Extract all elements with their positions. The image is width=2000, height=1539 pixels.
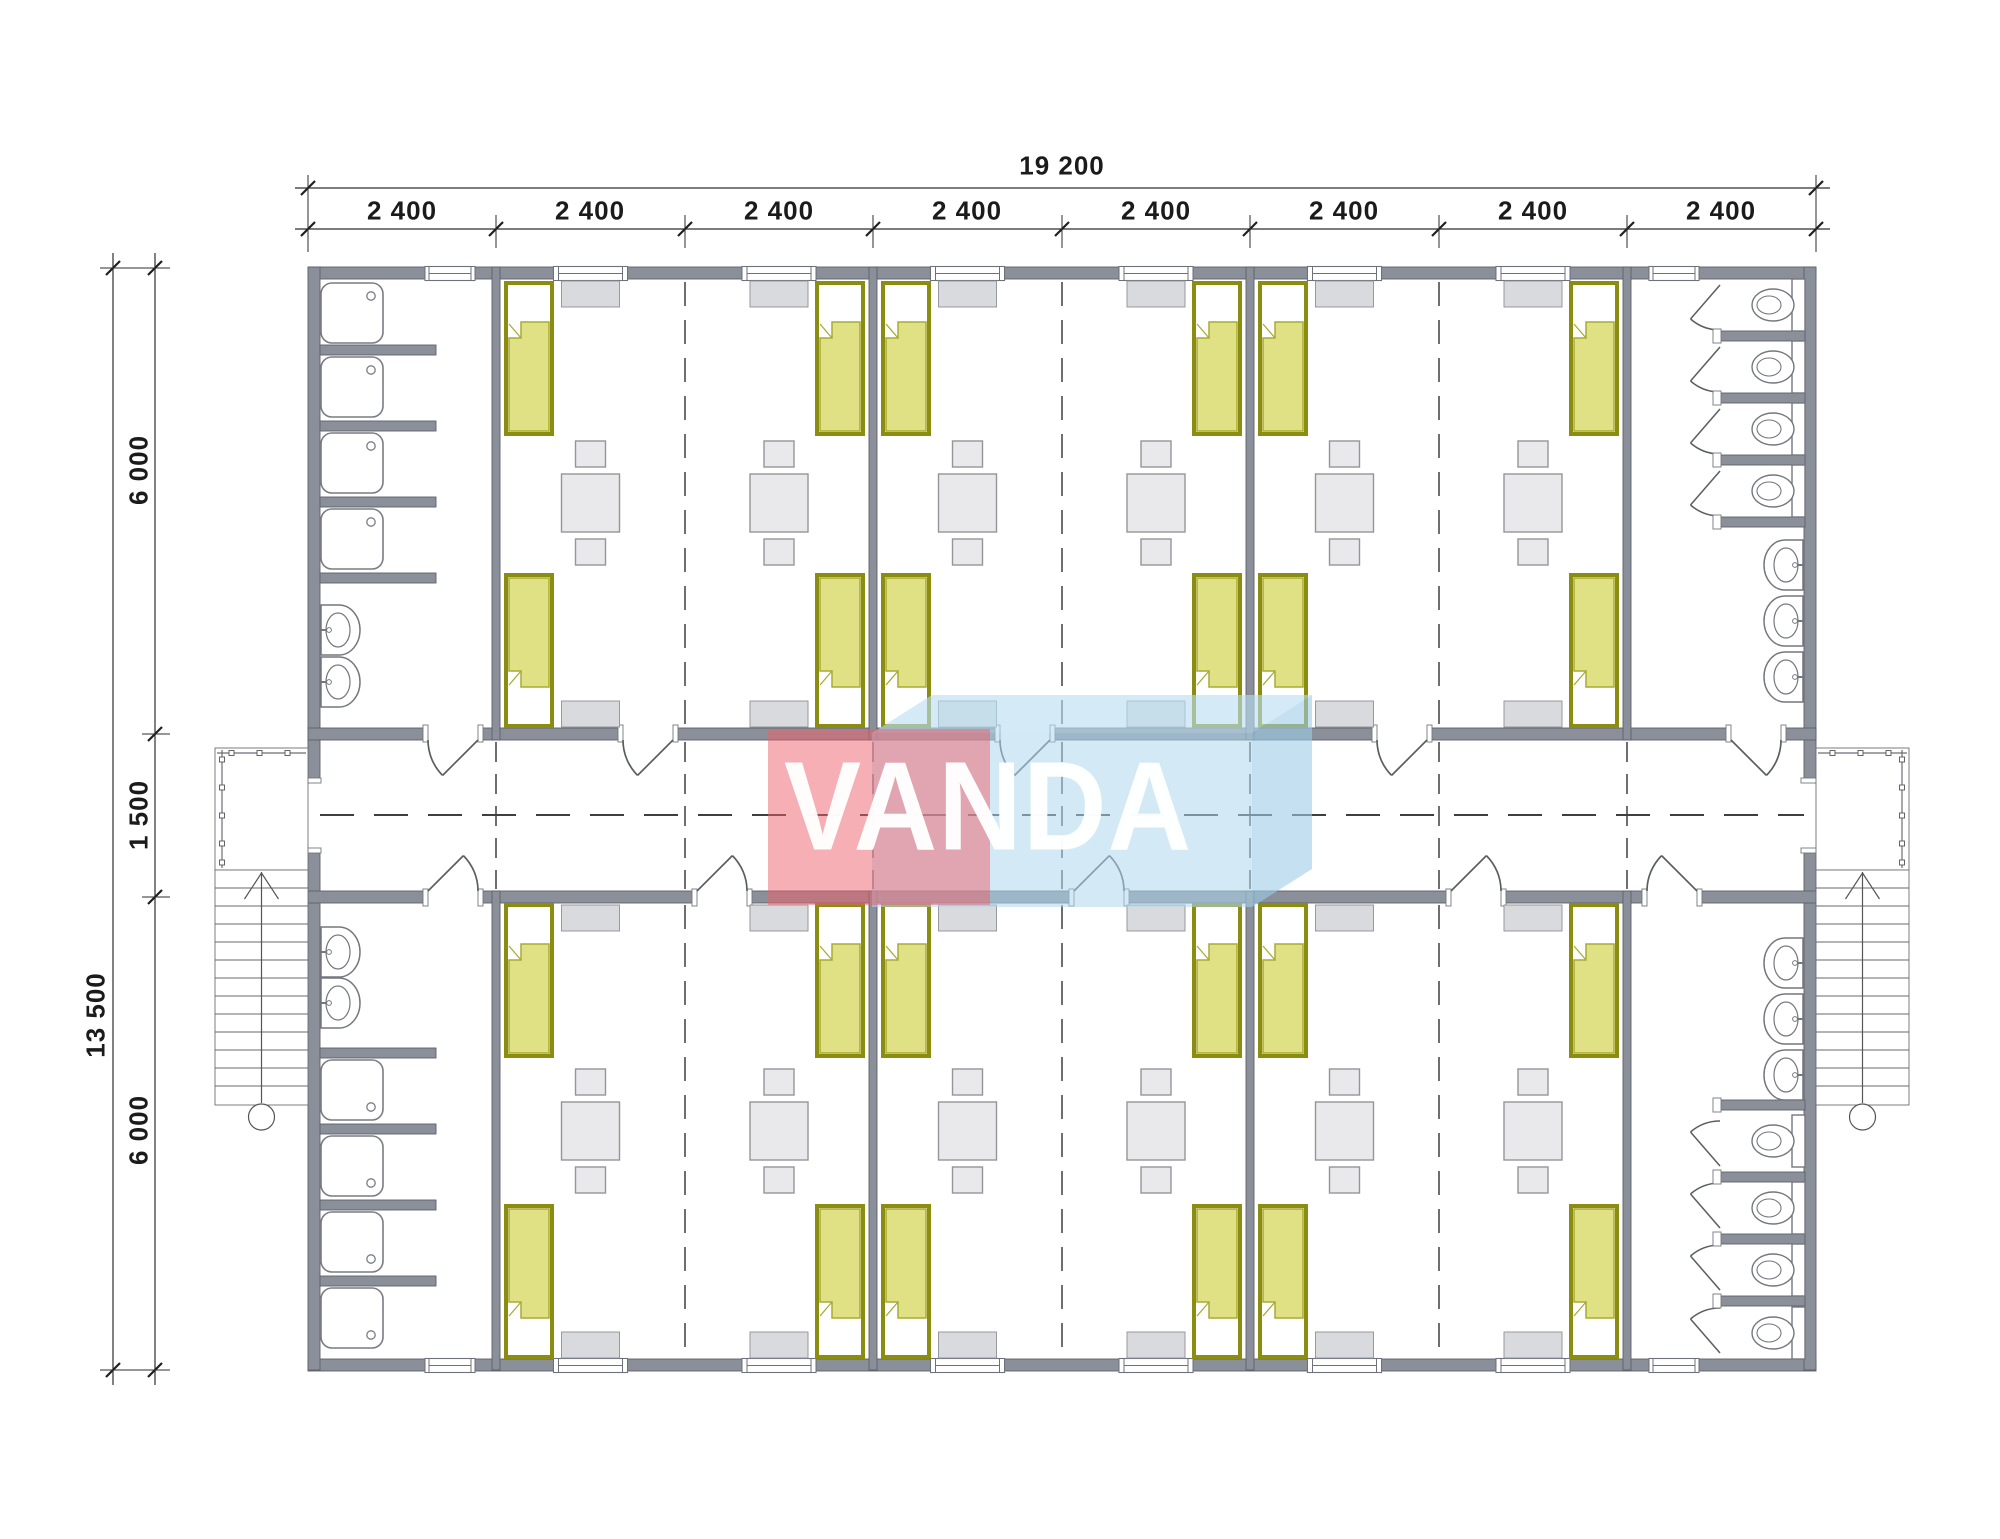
stair-newel: [249, 1104, 275, 1130]
toilet: [1752, 279, 1805, 331]
bed: [817, 283, 863, 434]
bed: [1571, 575, 1617, 726]
railing-post: [1830, 751, 1835, 756]
wall-segment: [320, 1048, 436, 1058]
railing-post: [1900, 813, 1905, 818]
dim-segment-label: 6 000: [124, 1095, 155, 1165]
table-and-stools: [562, 441, 620, 565]
room-door: [428, 856, 478, 891]
toilet: [1752, 341, 1805, 393]
dim-module-label: 2 400: [932, 196, 1002, 227]
railing-post: [220, 813, 225, 818]
radiator: [939, 1332, 997, 1358]
washbasin: [321, 927, 360, 977]
door-jamb: [423, 725, 428, 742]
washbasin: [1764, 652, 1803, 702]
railing-post: [220, 785, 225, 790]
dim-module-label: 2 400: [744, 196, 814, 227]
cabinet: [1316, 905, 1374, 931]
door-opening: [1731, 727, 1781, 741]
wall-segment: [1720, 1296, 1805, 1306]
window: [425, 267, 475, 281]
washbasin: [1764, 540, 1803, 590]
toilet: [1752, 1182, 1805, 1234]
wall-segment: [1720, 1100, 1805, 1110]
dim-total-height-label: 13 500: [81, 972, 112, 1058]
wall-segment: [320, 1276, 436, 1286]
table-and-stools: [1127, 1069, 1185, 1193]
wall-segment: [1246, 891, 1254, 1370]
radiator: [562, 1332, 620, 1358]
stall-door: [1691, 1183, 1721, 1228]
stall-door: [1691, 1245, 1721, 1290]
railing-post: [1900, 860, 1905, 865]
room-door: [697, 856, 747, 891]
shower-drain: [367, 1179, 375, 1187]
door-jamb: [1642, 889, 1647, 906]
bed: [883, 905, 929, 1056]
wall-segment: [320, 345, 436, 355]
railing-post: [1886, 751, 1891, 756]
bed: [817, 1206, 863, 1357]
wall-segment: [1246, 267, 1254, 740]
window: [1308, 1359, 1382, 1373]
porch: [215, 748, 308, 870]
room-door: [1731, 740, 1781, 775]
cabinet: [750, 905, 808, 931]
door-opening: [428, 727, 478, 741]
cabinet: [1504, 701, 1562, 727]
door-jamb: [1372, 725, 1377, 742]
table-and-stools: [1316, 1069, 1374, 1193]
cabinet: [939, 905, 997, 931]
wall-segment: [492, 891, 500, 1370]
wall-segment: [320, 1200, 436, 1210]
dim-module-label: 2 400: [555, 196, 625, 227]
washbasin: [1764, 938, 1803, 988]
toilet: [1752, 1115, 1805, 1167]
door-opening: [623, 727, 673, 741]
door-jamb: [478, 889, 483, 906]
shower-drain: [367, 442, 375, 450]
toilet: [1752, 403, 1805, 455]
stall-door: [1691, 347, 1721, 392]
dim-module-label: 2 400: [1686, 196, 1756, 227]
table-and-stools: [750, 1069, 808, 1193]
bed: [1194, 905, 1240, 1056]
window: [1119, 267, 1193, 281]
dim-segment-label: 1 500: [124, 780, 155, 850]
door-jamb: [1501, 889, 1506, 906]
window: [1649, 1359, 1699, 1373]
door-jamb: [692, 889, 697, 906]
washbasin: [321, 657, 360, 707]
railing-post: [257, 751, 262, 756]
bed: [1260, 905, 1306, 1056]
door-opening: [1451, 890, 1501, 904]
cabinet: [562, 905, 620, 931]
table-and-stools: [1127, 441, 1185, 565]
radiator: [1127, 281, 1185, 307]
room-door: [623, 740, 673, 775]
bed: [883, 1206, 929, 1357]
door-opening: [697, 890, 747, 904]
shower-drain: [367, 1255, 375, 1263]
bed: [883, 283, 929, 434]
stall-door: [1691, 285, 1721, 330]
porch: [1816, 748, 1909, 870]
door-jamb: [1427, 725, 1432, 742]
stall-jamb: [1713, 1170, 1721, 1184]
window: [742, 267, 816, 281]
dim-segment-label: 6 000: [124, 435, 155, 505]
wall-segment: [492, 267, 500, 740]
stall-jamb: [1713, 515, 1721, 529]
bed: [1194, 283, 1240, 434]
door-opening: [1647, 890, 1697, 904]
table-and-stools: [1316, 441, 1374, 565]
wall-segment: [1720, 1234, 1805, 1244]
shower-drain: [367, 1103, 375, 1111]
railing-post: [1900, 757, 1905, 762]
railing-post: [220, 841, 225, 846]
washbasin: [1764, 1050, 1803, 1100]
door-opening: [428, 890, 478, 904]
cabinet: [562, 701, 620, 727]
wall-segment: [1720, 393, 1805, 403]
radiator: [1504, 1332, 1562, 1358]
wall-segment: [320, 573, 436, 583]
railing-post: [285, 751, 290, 756]
entry-opening: [307, 783, 321, 848]
bed: [1194, 1206, 1240, 1357]
cabinet: [750, 701, 808, 727]
watermark-box-top: [872, 695, 1312, 733]
stall-jamb: [1713, 453, 1721, 467]
dim-module-label: 2 400: [1498, 196, 1568, 227]
table-and-stools: [750, 441, 808, 565]
door-jamb: [1781, 725, 1786, 742]
entry-opening: [1803, 783, 1817, 848]
washbasin: [1764, 596, 1803, 646]
window: [425, 1359, 475, 1373]
radiator: [1316, 281, 1374, 307]
window: [554, 267, 628, 281]
dim-module-label: 2 400: [1121, 196, 1191, 227]
door-jamb: [747, 889, 752, 906]
railing-post: [229, 751, 234, 756]
cabinet: [1504, 905, 1562, 931]
table-and-stools: [562, 1069, 620, 1193]
railing-post: [1900, 841, 1905, 846]
railing-post: [220, 757, 225, 762]
radiator: [562, 281, 620, 307]
bed: [1571, 283, 1617, 434]
toilet: [1752, 1244, 1805, 1296]
radiator: [750, 281, 808, 307]
stall-jamb: [1713, 329, 1721, 343]
wall-segment: [869, 267, 877, 740]
stall-jamb: [1713, 1294, 1721, 1308]
wall-segment: [869, 891, 877, 1370]
railing-post: [220, 860, 225, 865]
bed: [506, 1206, 552, 1357]
table-and-stools: [939, 1069, 997, 1193]
stair-newel: [1850, 1104, 1876, 1130]
room-door: [428, 740, 478, 775]
toilet: [1752, 1307, 1805, 1359]
shower-drain: [367, 366, 375, 374]
stall-jamb: [1713, 391, 1721, 405]
wall-segment: [1720, 331, 1805, 341]
cabinet: [1127, 905, 1185, 931]
radiator: [1316, 1332, 1374, 1358]
wall-segment: [320, 1124, 436, 1134]
wall-segment: [308, 267, 1816, 279]
railing-post: [1858, 751, 1863, 756]
window: [554, 1359, 628, 1373]
window: [931, 267, 1005, 281]
stall-door: [1691, 409, 1721, 454]
dim-module-label: 2 400: [1309, 196, 1379, 227]
wall-segment: [1720, 1172, 1805, 1182]
shower-drain: [367, 292, 375, 300]
wall-segment: [1623, 267, 1631, 740]
table-and-stools: [1504, 441, 1562, 565]
window: [1496, 1359, 1570, 1373]
wall-segment: [308, 1359, 1816, 1371]
door-jamb: [478, 725, 483, 742]
toilet: [1752, 465, 1805, 517]
stall-door: [1691, 1121, 1721, 1166]
stall-door: [1691, 1308, 1721, 1353]
window: [931, 1359, 1005, 1373]
wall-segment: [1720, 517, 1805, 527]
door-opening: [1377, 727, 1427, 741]
door-jamb: [423, 889, 428, 906]
door-jamb: [673, 725, 678, 742]
door-jamb: [1726, 725, 1731, 742]
stall-jamb: [1713, 1232, 1721, 1246]
washbasin: [1764, 994, 1803, 1044]
wall-segment: [320, 421, 436, 431]
window: [1308, 267, 1382, 281]
radiator: [939, 281, 997, 307]
stall-door: [1691, 471, 1721, 516]
wall-segment: [1623, 891, 1631, 1370]
watermark-text: VANDA: [784, 734, 1192, 879]
railing-post: [1900, 785, 1905, 790]
window: [742, 1359, 816, 1373]
floor-plan-canvas: 19 200 2 400 2 400 2 400 2 400 2 400 2 4…: [0, 0, 2000, 1539]
table-and-stools: [939, 441, 997, 565]
radiator: [1504, 281, 1562, 307]
room-door: [1647, 856, 1697, 891]
radiator: [750, 1332, 808, 1358]
washbasin: [321, 978, 360, 1028]
door-jamb: [618, 725, 623, 742]
cabinet: [1316, 701, 1374, 727]
room-door: [1451, 856, 1501, 891]
shower-drain: [367, 1331, 375, 1339]
shower-drain: [367, 518, 375, 526]
bed: [817, 575, 863, 726]
window: [1649, 267, 1699, 281]
bed: [1571, 905, 1617, 1056]
dim-total-width-label: 19 200: [1019, 151, 1105, 182]
wall-segment: [1720, 455, 1805, 465]
radiator: [1127, 1332, 1185, 1358]
bed: [1571, 1206, 1617, 1357]
bed: [1260, 1206, 1306, 1357]
bed: [1260, 283, 1306, 434]
bed: [817, 905, 863, 1056]
bed: [506, 283, 552, 434]
door-jamb: [1446, 889, 1451, 906]
door-jamb: [1697, 889, 1702, 906]
window: [1119, 1359, 1193, 1373]
bed: [506, 905, 552, 1056]
room-door: [1377, 740, 1427, 775]
bed: [506, 575, 552, 726]
washbasin: [321, 605, 360, 655]
stall-jamb: [1713, 1098, 1721, 1112]
table-and-stools: [1504, 1069, 1562, 1193]
dim-module-label: 2 400: [367, 196, 437, 227]
wall-segment: [320, 497, 436, 507]
window: [1496, 267, 1570, 281]
